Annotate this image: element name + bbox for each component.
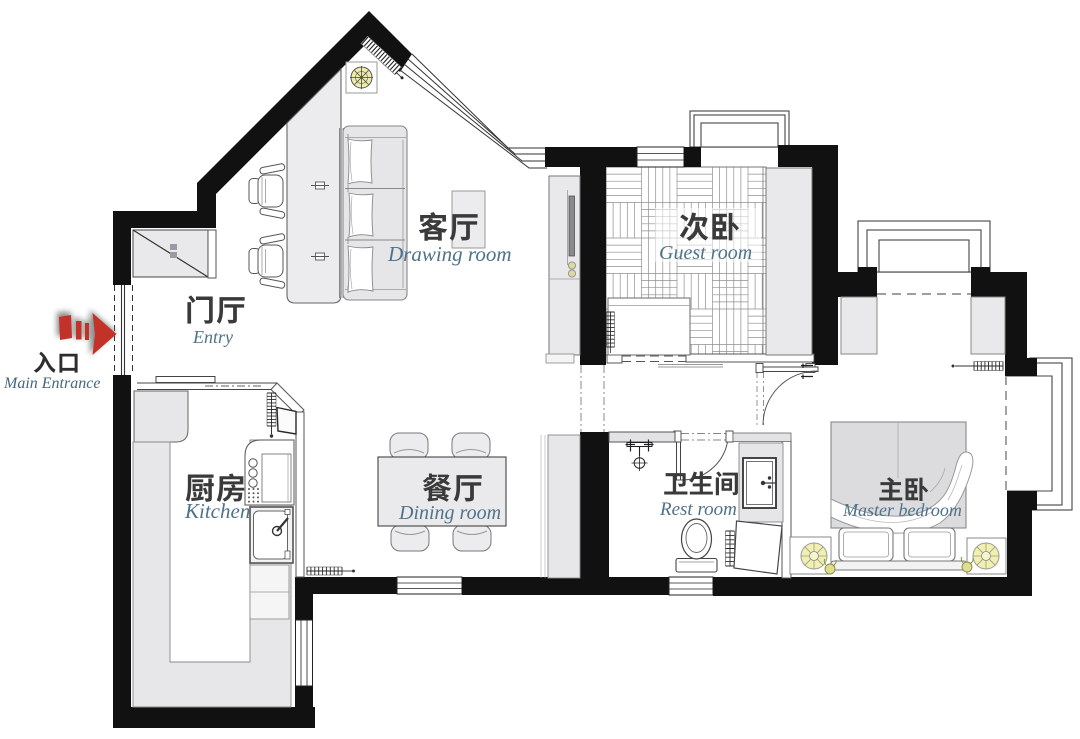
- svg-text:Main Entrance: Main Entrance: [3, 375, 100, 392]
- svg-text:Kitchen: Kitchen: [184, 499, 250, 523]
- svg-text:Entry: Entry: [192, 327, 233, 347]
- svg-text:Rest room: Rest room: [659, 499, 737, 520]
- svg-text:Dining room: Dining room: [398, 502, 501, 524]
- svg-text:Master bedroom: Master bedroom: [842, 500, 962, 520]
- svg-text:Guest room: Guest room: [659, 242, 752, 264]
- svg-text:Drawing room: Drawing room: [387, 242, 512, 266]
